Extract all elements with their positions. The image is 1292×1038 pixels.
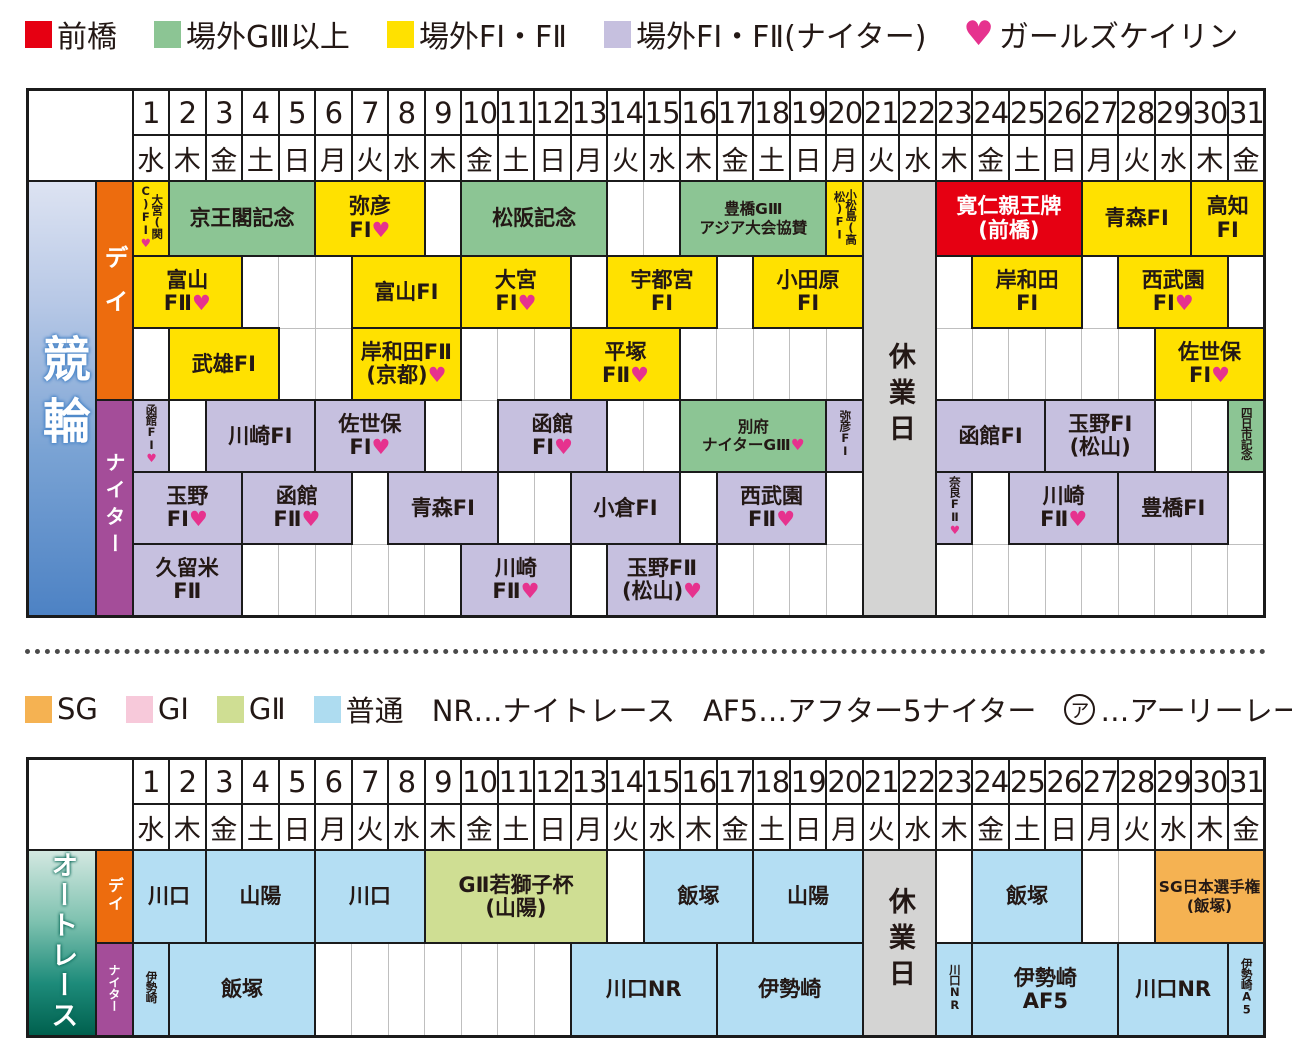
day-number-cell: 8: [388, 759, 425, 805]
legend-label: GⅡ: [249, 692, 286, 726]
event-cell: 西武園FⅡ♥: [717, 472, 827, 544]
day-number-cell: 28: [1118, 759, 1155, 805]
event-cell: 豊橋GⅢアジア大会協賛: [680, 181, 826, 256]
day-number-cell: 14: [607, 90, 644, 136]
legend-item-girls-keirin: ♥ ガールズケイリン: [963, 12, 1238, 56]
day-number-cell: 23: [936, 759, 973, 805]
empty-cell: [279, 544, 316, 616]
empty-cell: [315, 544, 352, 616]
weekday-cell: 月: [571, 804, 608, 850]
weekday-cell: 土: [498, 135, 535, 181]
legend-label: 前橋: [57, 12, 117, 56]
event-cell: 山陽: [206, 850, 316, 943]
event-cell: 青森FI: [1082, 181, 1192, 256]
legend-label: ガールズケイリン: [999, 12, 1238, 56]
empty-cell: [790, 544, 827, 616]
day-number-cell: 7: [352, 90, 389, 136]
empty-cell: [242, 256, 279, 328]
day-number-cell: 13: [571, 759, 608, 805]
weekday-cell: 木: [1191, 135, 1228, 181]
event-cell: 岸和田FⅡ(京都)♥: [352, 328, 462, 400]
empty-cell: [571, 256, 608, 328]
day-number-cell: 6: [315, 759, 352, 805]
legend-label: …アーリーレース: [1100, 688, 1292, 730]
day-number-cell: 22: [899, 90, 936, 136]
weekday-cell: 日: [790, 804, 827, 850]
section-label: デイ: [96, 850, 133, 943]
day-number-cell: 16: [680, 90, 717, 136]
gaisai-night-swatch-icon: [604, 21, 631, 48]
day-number-cell: 3: [206, 90, 243, 136]
weekday-cell: 月: [1082, 804, 1119, 850]
event-cell: 富山FI: [352, 256, 462, 328]
futsu-swatch-icon: [314, 696, 341, 723]
event-cell: 玉野FI(松山): [1045, 400, 1155, 472]
closed-days-cell: 休業日: [863, 181, 936, 616]
empty-cell: [388, 943, 425, 1036]
day-number-cell: 26: [1045, 90, 1082, 136]
weekday-cell: 木: [169, 804, 206, 850]
event-cell: GⅡ若獅子杯(山陽): [425, 850, 608, 943]
day-number-cell: 22: [899, 759, 936, 805]
weekday-cell: 日: [534, 804, 571, 850]
empty-cell: [972, 544, 1009, 616]
empty-cell: [315, 943, 352, 1036]
weekday-cell: 日: [279, 135, 316, 181]
weekday-cell: 月: [315, 804, 352, 850]
keirin-legend: 前橋 場外GⅢ以上 場外FI・FⅡ 場外FI・FⅡ(ナイター) ♥ ガールズケイ…: [25, 12, 1238, 56]
weekday-cell: 水: [899, 804, 936, 850]
weekday-cell: 火: [863, 135, 900, 181]
gaisai-g3-swatch-icon: [154, 21, 181, 48]
legend-label: NR…ナイトレース: [432, 688, 675, 730]
day-number-cell: 29: [1155, 90, 1192, 136]
empty-cell: [644, 400, 681, 472]
day-number-cell: 11: [498, 90, 535, 136]
day-number-cell: 12: [534, 90, 571, 136]
weekday-cell: 水: [1155, 804, 1192, 850]
weekday-cell: 土: [242, 804, 279, 850]
weekday-cell: 火: [352, 135, 389, 181]
weekday-cell: 日: [534, 135, 571, 181]
empty-cell: [644, 181, 681, 256]
gaisai-f-swatch-icon: [387, 21, 414, 48]
empty-cell: [972, 328, 1009, 400]
keirin-side-label: 競輪: [28, 181, 96, 616]
empty-cell: [315, 328, 352, 400]
event-cell: 函館FⅡ♥: [242, 472, 352, 544]
weekday-cell: 水: [388, 135, 425, 181]
empty-cell: [1191, 400, 1228, 472]
empty-cell: [717, 544, 754, 616]
legend-item-maebashi: 前橋: [25, 12, 117, 56]
event-cell: 函館FI: [936, 400, 1046, 472]
day-number-cell: 7: [352, 759, 389, 805]
day-number-cell: 15: [644, 759, 681, 805]
day-number-cell: 20: [826, 759, 863, 805]
event-cell: 京王閣記念: [169, 181, 315, 256]
legend-label: AF5…アフター5ナイター: [703, 688, 1036, 730]
section-label: デイ: [96, 181, 133, 400]
day-number-cell: 11: [498, 759, 535, 805]
event-cell: 青森FI: [388, 472, 498, 544]
empty-cell: [425, 181, 462, 256]
legend-item-gaisai-f: 場外FI・FⅡ: [387, 12, 567, 56]
day-number-cell: 1: [133, 90, 170, 136]
empty-cell: [1228, 472, 1265, 544]
weekday-cell: 木: [425, 804, 462, 850]
empty-cell: [1082, 256, 1119, 328]
day-number-cell: 24: [972, 90, 1009, 136]
weekday-cell: 土: [498, 804, 535, 850]
event-cell: 西武園FI♥: [1118, 256, 1228, 328]
event-cell: 佐世保FI♥: [1155, 328, 1265, 400]
event-cell: 川口NR: [571, 943, 717, 1036]
empty-cell: [1191, 544, 1228, 616]
empty-cell: [826, 544, 863, 616]
empty-cell: [717, 328, 754, 400]
event-cell: 川口NR: [936, 943, 973, 1036]
legend-item-gaisai-night: 場外FI・FⅡ(ナイター): [604, 12, 926, 56]
weekday-cell: 木: [936, 804, 973, 850]
event-cell: 函館FI♥: [133, 400, 170, 472]
day-number-cell: 29: [1155, 759, 1192, 805]
empty-cell: [425, 544, 462, 616]
weekday-cell: 水: [133, 135, 170, 181]
weekday-cell: 水: [133, 804, 170, 850]
maebashi-swatch-icon: [25, 21, 52, 48]
day-number-cell: 6: [315, 90, 352, 136]
weekday-cell: 火: [863, 804, 900, 850]
event-cell: 川口NR: [1118, 943, 1228, 1036]
day-number-cell: 19: [790, 759, 827, 805]
event-cell: 伊勢崎A5: [1228, 943, 1265, 1036]
weekday-cell: 月: [826, 804, 863, 850]
weekday-cell: 木: [680, 804, 717, 850]
day-number-cell: 19: [790, 90, 827, 136]
empty-cell: [461, 943, 498, 1036]
weekday-cell: 火: [1118, 804, 1155, 850]
empty-cell: [936, 850, 973, 943]
legend-label: 場外GⅢ以上: [186, 12, 350, 56]
weekday-cell: 水: [388, 804, 425, 850]
autorace-calendar-table: 10月1234567891011121314151617181920212223…: [26, 757, 1266, 1038]
weekday-cell: 水: [644, 804, 681, 850]
weekday-cell: 木: [1191, 804, 1228, 850]
event-cell: 山陽: [753, 850, 863, 943]
weekday-cell: 金: [461, 135, 498, 181]
empty-cell: [242, 544, 279, 616]
event-cell: 高知FI: [1191, 181, 1264, 256]
weekday-cell: 木: [936, 135, 973, 181]
event-cell: 武雄FI: [169, 328, 279, 400]
day-number-cell: 1: [133, 759, 170, 805]
empty-cell: [425, 400, 462, 472]
legend-label: 場外FI・FⅡ: [419, 12, 567, 56]
empty-cell: [680, 328, 717, 400]
legend-item-nr: NR…ナイトレース: [432, 688, 675, 730]
empty-cell: [1118, 850, 1155, 943]
event-cell: 飯塚: [169, 943, 315, 1036]
g1-swatch-icon: [126, 696, 153, 723]
event-cell: 寛仁親王牌(前橋): [936, 181, 1082, 256]
day-number-cell: 17: [717, 90, 754, 136]
empty-cell: [607, 181, 644, 256]
day-number-cell: 18: [753, 90, 790, 136]
weekday-cell: 金: [206, 135, 243, 181]
dotted-separator: [25, 649, 1266, 654]
event-cell: 平塚FⅡ♥: [571, 328, 681, 400]
g2-swatch-icon: [217, 696, 244, 723]
event-cell: 小松島(高松)FI: [826, 181, 863, 256]
event-cell: 宇都宮FI: [607, 256, 717, 328]
day-number-cell: 25: [1009, 759, 1046, 805]
day-number-cell: 26: [1045, 759, 1082, 805]
empty-cell: [717, 256, 754, 328]
weekday-cell: 月: [1082, 135, 1119, 181]
weekday-cell: 金: [1228, 804, 1265, 850]
empty-cell: [826, 328, 863, 400]
day-number-cell: 9: [425, 759, 462, 805]
event-cell: 四日市記念: [1228, 400, 1265, 472]
month-label: 10月: [28, 90, 133, 182]
day-number-cell: 18: [753, 759, 790, 805]
day-number-cell: 15: [644, 90, 681, 136]
event-cell: 奈良FⅡ♥: [936, 472, 973, 544]
legend-item-g1: GI: [126, 692, 189, 726]
empty-cell: [425, 943, 462, 1036]
weekday-cell: 木: [425, 135, 462, 181]
empty-cell: [936, 544, 973, 616]
day-number-cell: 21: [863, 759, 900, 805]
weekday-cell: 木: [680, 135, 717, 181]
empty-cell: [826, 472, 863, 544]
weekday-cell: 金: [1228, 135, 1265, 181]
day-number-cell: 2: [169, 759, 206, 805]
empty-cell: [607, 400, 644, 472]
empty-cell: [534, 943, 571, 1036]
event-cell: 川口: [315, 850, 425, 943]
legend-label: SG: [57, 692, 98, 726]
empty-cell: [352, 544, 389, 616]
day-number-cell: 17: [717, 759, 754, 805]
empty-cell: [498, 328, 535, 400]
weekday-cell: 水: [644, 135, 681, 181]
event-cell: 玉野FI♥: [133, 472, 243, 544]
event-cell: 川崎FⅡ♥: [1009, 472, 1119, 544]
weekday-cell: 土: [1009, 804, 1046, 850]
empty-cell: [1009, 328, 1046, 400]
weekday-cell: 火: [607, 135, 644, 181]
event-cell: 岸和田FI: [972, 256, 1082, 328]
sg-swatch-icon: [25, 696, 52, 723]
event-cell: 飯塚: [644, 850, 754, 943]
empty-cell: [279, 256, 316, 328]
event-cell: 伊勢崎: [133, 943, 170, 1036]
weekday-cell: 金: [972, 804, 1009, 850]
empty-cell: [498, 472, 535, 544]
empty-cell: [972, 472, 1009, 544]
day-number-cell: 4: [242, 759, 279, 805]
day-number-cell: 20: [826, 90, 863, 136]
event-cell: 富山FⅡ♥: [133, 256, 243, 328]
closed-days-cell: 休業日: [863, 850, 936, 1037]
weekday-cell: 金: [206, 804, 243, 850]
empty-cell: [461, 400, 498, 472]
day-number-cell: 23: [936, 90, 973, 136]
event-cell: 伊勢崎AF5: [972, 943, 1118, 1036]
empty-cell: [936, 328, 973, 400]
weekday-cell: 水: [1155, 135, 1192, 181]
event-cell: 川口: [133, 850, 206, 943]
empty-cell: [352, 943, 389, 1036]
event-cell: 川崎FⅡ♥: [461, 544, 571, 616]
event-cell: 弥彦FI: [826, 400, 863, 472]
day-number-cell: 13: [571, 90, 608, 136]
day-number-cell: 27: [1082, 90, 1119, 136]
weekday-cell: 月: [571, 135, 608, 181]
empty-cell: [680, 472, 717, 544]
weekday-cell: 日: [790, 135, 827, 181]
day-number-cell: 30: [1191, 759, 1228, 805]
weekday-cell: 土: [1009, 135, 1046, 181]
empty-cell: [133, 328, 170, 400]
event-cell: 豊橋FI: [1118, 472, 1228, 544]
event-cell: 弥彦FI♥: [315, 181, 425, 256]
event-cell: 大宮FI♥: [461, 256, 571, 328]
empty-cell: [1228, 544, 1265, 616]
day-number-cell: 10: [461, 759, 498, 805]
event-cell: 飯塚: [972, 850, 1082, 943]
event-cell: 伊勢崎: [717, 943, 863, 1036]
empty-cell: [498, 943, 535, 1036]
empty-cell: [753, 544, 790, 616]
event-cell: 函館FI♥: [498, 400, 608, 472]
day-number-cell: 31: [1228, 759, 1265, 805]
empty-cell: [461, 328, 498, 400]
empty-cell: [352, 472, 389, 544]
empty-cell: [534, 472, 571, 544]
day-number-cell: 9: [425, 90, 462, 136]
event-cell: 別府ナイターGⅢ♥: [680, 400, 826, 472]
weekday-cell: 火: [352, 804, 389, 850]
event-cell: 小田原FI: [753, 256, 863, 328]
autorace-side-label: オートレース: [28, 850, 96, 1037]
empty-cell: [169, 400, 206, 472]
weekday-cell: 日: [279, 804, 316, 850]
weekday-cell: 日: [1045, 135, 1082, 181]
section-label: ナイター: [96, 943, 133, 1036]
weekday-cell: 土: [753, 804, 790, 850]
empty-cell: [279, 328, 316, 400]
month-label: 10月: [28, 759, 133, 851]
legend-item-gaisai-g3: 場外GⅢ以上: [154, 12, 350, 56]
weekday-cell: 金: [717, 135, 754, 181]
day-number-cell: 10: [461, 90, 498, 136]
event-cell: 佐世保FI♥: [315, 400, 425, 472]
legend-label: GI: [158, 692, 189, 726]
day-number-cell: 12: [534, 759, 571, 805]
weekday-cell: 金: [972, 135, 1009, 181]
legend-item-futsu: 普通: [314, 688, 404, 730]
section-label: ナイター: [96, 400, 133, 616]
weekday-cell: 土: [242, 135, 279, 181]
circled-a-icon: ア: [1064, 694, 1095, 725]
event-cell: 大宮(関C)FI♥: [133, 181, 170, 256]
legend-item-early-race: ア …アーリーレース: [1064, 688, 1292, 730]
empty-cell: [1082, 544, 1119, 616]
empty-cell: [1082, 850, 1119, 943]
legend-item-af5: AF5…アフター5ナイター: [703, 688, 1036, 730]
day-number-cell: 4: [242, 90, 279, 136]
event-cell: 玉野FⅡ(松山)♥: [607, 544, 717, 616]
day-number-cell: 3: [206, 759, 243, 805]
empty-cell: [790, 328, 827, 400]
legend-item-sg: SG: [25, 692, 98, 726]
empty-cell: [315, 256, 352, 328]
day-number-cell: 25: [1009, 90, 1046, 136]
event-cell: 松阪記念: [461, 181, 607, 256]
event-cell: 川崎FI: [206, 400, 316, 472]
weekday-cell: 月: [826, 135, 863, 181]
legend-label: 普通: [346, 688, 404, 730]
day-number-cell: 16: [680, 759, 717, 805]
weekday-cell: 火: [607, 804, 644, 850]
autorace-legend: SG GI GⅡ 普通 NR…ナイトレース AF5…アフター5ナイター ア …ア…: [25, 688, 1292, 730]
empty-cell: [1155, 400, 1192, 472]
weekday-cell: 土: [753, 135, 790, 181]
empty-cell: [1155, 544, 1192, 616]
empty-cell: [1228, 256, 1265, 328]
legend-item-g2: GⅡ: [217, 692, 286, 726]
day-number-cell: 21: [863, 90, 900, 136]
event-cell: 小倉FI: [571, 472, 681, 544]
legend-label: 場外FI・FⅡ(ナイター): [636, 12, 926, 56]
heart-icon: ♥: [963, 17, 993, 51]
weekday-cell: 金: [717, 804, 754, 850]
event-cell: SG日本選手権(飯塚): [1155, 850, 1265, 943]
empty-cell: [607, 850, 644, 943]
day-number-cell: 24: [972, 759, 1009, 805]
day-number-cell: 27: [1082, 759, 1119, 805]
empty-cell: [936, 256, 973, 328]
day-number-cell: 14: [607, 759, 644, 805]
empty-cell: [1118, 544, 1155, 616]
empty-cell: [1082, 328, 1119, 400]
weekday-cell: 日: [1045, 804, 1082, 850]
day-number-cell: 31: [1228, 90, 1265, 136]
weekday-cell: 月: [315, 135, 352, 181]
weekday-cell: 水: [899, 135, 936, 181]
empty-cell: [753, 328, 790, 400]
event-cell: 久留米FⅡ: [133, 544, 243, 616]
empty-cell: [1009, 544, 1046, 616]
weekday-cell: 木: [169, 135, 206, 181]
day-number-cell: 2: [169, 90, 206, 136]
weekday-cell: 金: [461, 804, 498, 850]
day-number-cell: 30: [1191, 90, 1228, 136]
empty-cell: [571, 544, 608, 616]
empty-cell: [1118, 328, 1155, 400]
weekday-cell: 火: [1118, 135, 1155, 181]
day-number-cell: 28: [1118, 90, 1155, 136]
empty-cell: [534, 328, 571, 400]
day-number-cell: 8: [388, 90, 425, 136]
empty-cell: [1045, 544, 1082, 616]
empty-cell: [1045, 328, 1082, 400]
day-number-cell: 5: [279, 759, 316, 805]
empty-cell: [388, 544, 425, 616]
